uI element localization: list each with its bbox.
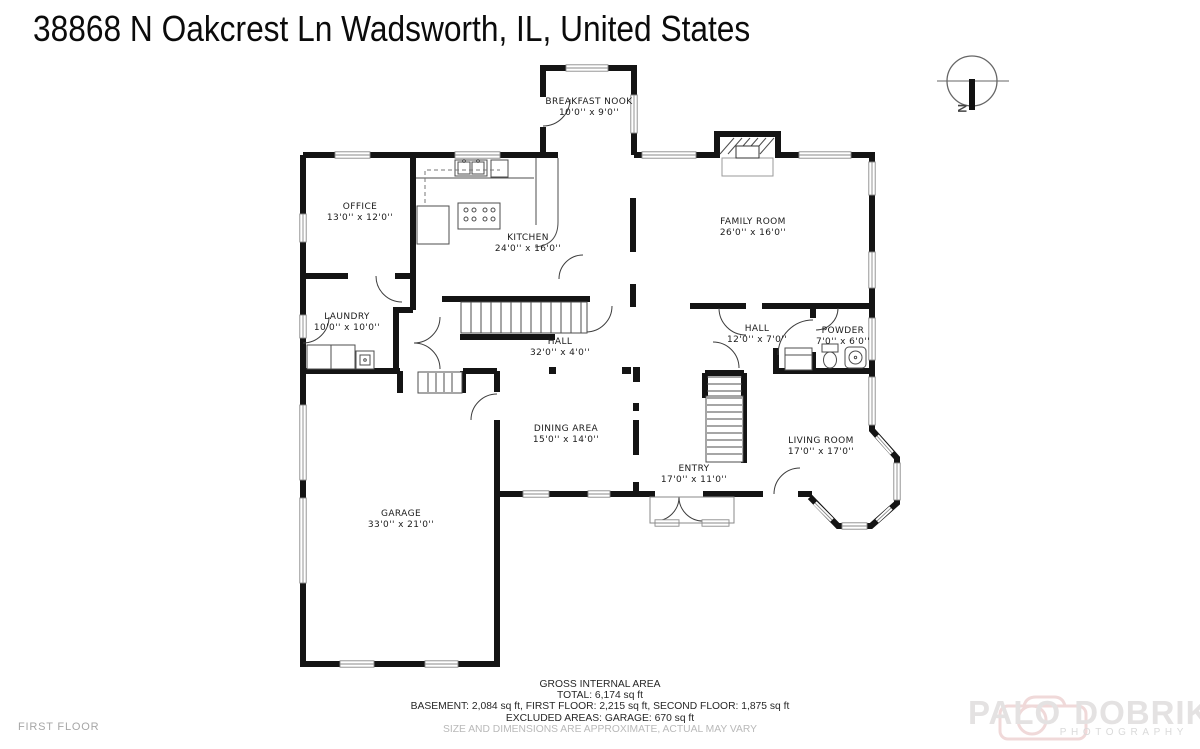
washer [307,345,331,369]
room-label-entry: ENTRY 17'0'' x 11'0'' [661,464,727,486]
room-dims: 12'0'' x 7'0'' [727,335,787,346]
wall-post [633,367,640,382]
room-label-living-room: LIVING ROOM 17'0'' x 17'0'' [788,436,854,458]
kitchen-island [458,203,500,229]
dryer [331,345,355,369]
room-dims: 33'0'' x 21'0'' [368,520,434,531]
room-dims: 17'0'' x 17'0'' [788,447,854,458]
laundry-fixtures [307,345,374,369]
room-dims: 10'0'' x 10'0'' [314,323,380,334]
floor-label: FIRST FLOOR [18,721,99,733]
room-name: DINING AREA [533,424,599,435]
room-label-hall-rear: HALL 12'0'' x 7'0'' [727,324,787,346]
room-dims: 32'0'' x 4'0'' [530,348,590,359]
fridge [417,206,449,244]
room-label-kitchen: KITCHEN 24'0'' x 16'0'' [495,233,561,255]
photographer-watermark: PALO DOBRIK PHOTOGRAPHY [968,696,1190,744]
wall-post [549,367,556,374]
summary-heading: GROSS INTERNAL AREA [0,679,1200,690]
watermark-subtitle: PHOTOGRAPHY [1060,727,1188,738]
wall-post [622,367,631,374]
powder-sink [845,347,866,368]
room-name: KITCHEN [495,233,561,244]
fireplace [717,134,778,176]
wall-post [633,482,639,494]
room-dims: 7'0'' x 6'0'' [816,337,870,348]
room-dims: 10'0'' x 9'0'' [545,108,632,119]
stairs-entry [706,377,743,462]
watermark-brand: PALO DOBRIK [968,696,1200,729]
compass-north-label: N [955,104,969,113]
watermark-brand-left: PALO [968,696,1061,729]
room-name: LIVING ROOM [788,436,854,447]
garage-steps [418,372,462,393]
room-name: HALL [530,337,590,348]
room-name: OFFICE [327,202,393,213]
room-name: GARAGE [368,509,434,520]
room-label-laundry: LAUNDRY 10'0'' x 10'0'' [314,312,380,334]
room-label-breakfast-nook: BREAKFAST NOOK 10'0'' x 9'0'' [545,97,632,119]
room-name: BREAKFAST NOOK [545,97,632,108]
room-dims: 13'0'' x 12'0'' [327,213,393,224]
room-label-powder: POWDER 7'0'' x 6'0'' [816,326,870,348]
room-name: HALL [727,324,787,335]
room-label-office: OFFICE 13'0'' x 12'0'' [327,202,393,224]
front-porch [650,497,734,526]
room-name: LAUNDRY [314,312,380,323]
room-label-family-room: FAMILY ROOM 26'0'' x 16'0'' [720,217,786,239]
north-compass-icon: N [935,48,1015,126]
wall-post [633,403,639,411]
room-label-garage: GARAGE 33'0'' x 21'0'' [368,509,434,531]
floorplan-page: 38868 N Oakcrest Ln Wadsworth, IL, Unite… [0,0,1200,749]
room-name: POWDER [816,326,870,337]
stairs-hall [461,302,587,333]
utility-sink [356,351,374,369]
room-dims: 15'0'' x 14'0'' [533,435,599,446]
room-dims: 24'0'' x 16'0'' [495,244,561,255]
room-name: ENTRY [661,464,727,475]
room-label-dining-area: DINING AREA 15'0'' x 14'0'' [533,424,599,446]
watermark-brand-right: DOBRIK [1074,696,1200,729]
room-label-hall-main: HALL 32'0'' x 4'0'' [530,337,590,359]
room-name: FAMILY ROOM [720,217,786,228]
vanity-cabinet [785,348,812,370]
room-dims: 26'0'' x 16'0'' [720,228,786,239]
room-dims: 17'0'' x 11'0'' [661,475,727,486]
